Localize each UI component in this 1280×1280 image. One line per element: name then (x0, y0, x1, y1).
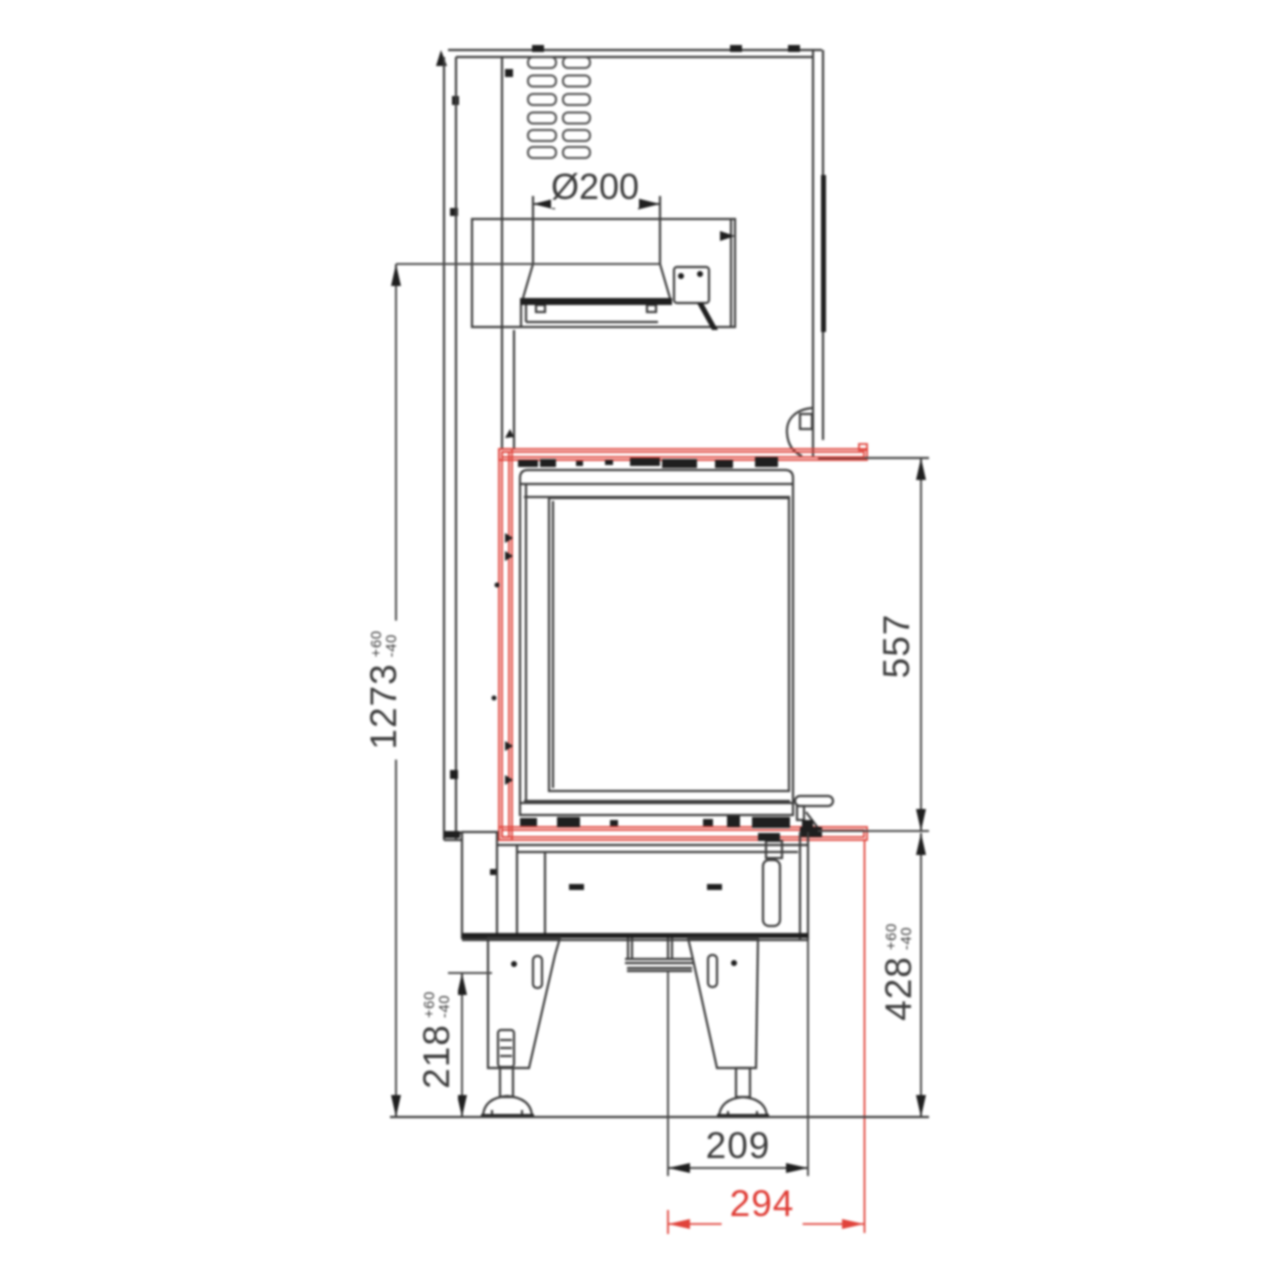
base-height-tol-plus: +60 (884, 923, 899, 950)
base-height-value: 428 (878, 956, 920, 1021)
flue-collar-marks (520, 231, 735, 330)
frame-depth-label: 294 (722, 1183, 803, 1225)
firebox-height-value: 557 (876, 614, 918, 679)
frame-depth-value: 294 (730, 1183, 795, 1224)
leg-marks (481, 960, 769, 1118)
base-height-tolerance: +60 -40 (884, 923, 914, 950)
drawing-linework (0, 0, 1280, 1280)
leg-height-tolerance: +60 -40 (422, 991, 452, 1018)
right-wall-marks (821, 175, 826, 332)
foot-distance-value: 209 (706, 1125, 771, 1166)
leg-height-value: 218 (416, 1024, 458, 1089)
legs (483, 938, 767, 1117)
firebox-height-label: 557 (876, 604, 918, 689)
base-box (462, 832, 808, 940)
height-total-tolerance: +60 -40 (369, 630, 399, 657)
base-height-label: 428 +60 -40 (878, 913, 920, 1031)
height-total-value: 1273 (363, 663, 405, 749)
technical-drawing-stage: Ø200 1273 +60 -40 557 428 +60 -40 218 +6… (0, 0, 1280, 1280)
firebox-door (520, 470, 793, 815)
base-height-tol-minus: -40 (899, 923, 914, 950)
top-panel (448, 50, 822, 57)
height-total-tol-minus: -40 (384, 630, 399, 657)
vent-slots (528, 57, 590, 158)
height-total-label: 1273 +60 -40 (363, 620, 405, 759)
leg-height-tol-minus: -40 (437, 991, 452, 1018)
red-frame (499, 444, 867, 1233)
leg-height-label: 218 +60 -40 (416, 981, 458, 1099)
right-wall-panel (787, 50, 929, 458)
base-box-marks (462, 833, 808, 938)
flue-diameter-label: Ø200 (551, 166, 639, 208)
flue-collar (472, 196, 735, 327)
foot-distance-label: 209 (698, 1125, 779, 1167)
door-handle (795, 796, 833, 828)
technical-drawing-page: Ø200 1273 +60 -40 557 428 +60 -40 218 +6… (0, 0, 1280, 1280)
rear-wall-marks (444, 770, 460, 838)
flue-diameter-value: Ø200 (551, 166, 639, 207)
leg-height-tol-plus: +60 (422, 991, 437, 1018)
height-total-tol-plus: +60 (369, 630, 384, 657)
firebox-top-marks (518, 457, 778, 468)
